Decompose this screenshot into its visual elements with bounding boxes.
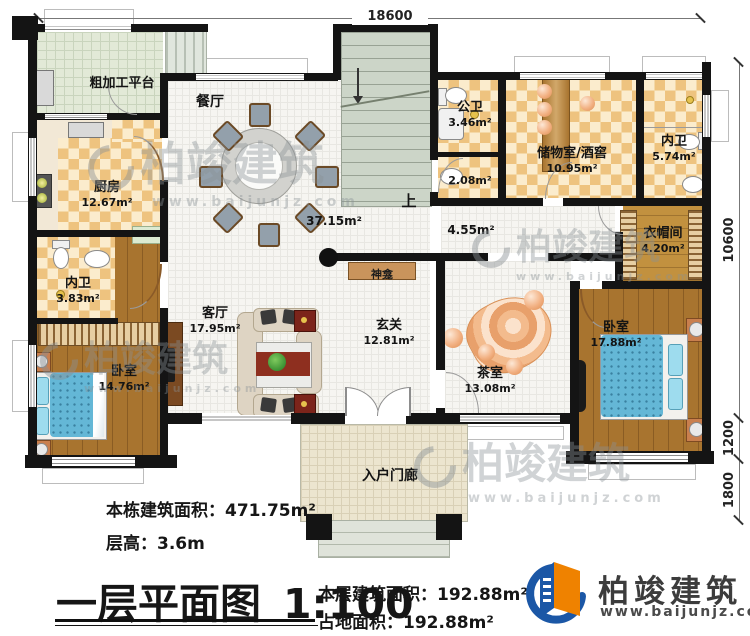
room-label-storage: 储物室/酒窖 10.95m² xyxy=(510,146,634,176)
brand-logo-icon xyxy=(524,554,590,632)
column xyxy=(319,248,338,267)
tv xyxy=(579,360,586,412)
footprint-line: 占地面积：192.88m² xyxy=(318,608,494,633)
stair-arrow xyxy=(357,68,359,98)
dimension-right-mid: 1200 xyxy=(722,416,738,460)
pillow xyxy=(36,407,49,435)
building-area-line: 本栋建筑面积：471.75m² xyxy=(106,496,316,521)
room-label-closet: 衣帽间 4.20m² xyxy=(622,226,704,256)
window xyxy=(45,114,107,119)
wall xyxy=(160,180,168,262)
dimension-right-low: 1800 xyxy=(722,468,738,512)
wall xyxy=(615,198,623,206)
room-label-bedroom-right: 卧室 17.88m² xyxy=(578,320,654,350)
room-label-foyer: 玄关 12.81m² xyxy=(352,318,426,348)
dining-chair xyxy=(258,223,280,247)
room-label-public-bath: 公卫 3.46m² xyxy=(440,100,500,130)
wine-jar xyxy=(537,84,552,99)
window-sill xyxy=(190,58,308,74)
stairs-up-label: 上 xyxy=(398,192,420,211)
room-label-living: 客厅 17.95m² xyxy=(178,306,252,336)
window xyxy=(29,345,36,407)
wall xyxy=(430,192,438,206)
wall xyxy=(548,253,622,261)
tea-stone-small xyxy=(524,290,544,310)
prep-platform-floor xyxy=(37,32,163,113)
wall xyxy=(436,253,445,370)
bath-partition xyxy=(644,127,702,128)
decor-dot xyxy=(301,317,307,323)
room-label-kitchen: 厨房 12.67m² xyxy=(58,180,156,210)
wall xyxy=(436,408,445,424)
window-sill xyxy=(44,9,134,25)
porch-steps xyxy=(318,520,450,558)
window xyxy=(196,74,304,80)
wine-jar xyxy=(580,96,595,111)
room-label-dining: 餐厅 xyxy=(178,94,242,112)
dining-table-center xyxy=(235,142,283,190)
pillow xyxy=(668,378,683,410)
stove-burner xyxy=(37,193,47,203)
window xyxy=(460,415,560,422)
room-label-bedroom-left: 卧室 14.76m² xyxy=(78,364,170,394)
title-underline xyxy=(55,619,315,622)
wall xyxy=(433,152,501,157)
wall xyxy=(636,72,644,206)
brand-website: www.baijunjz.com xyxy=(600,604,750,620)
window-sill xyxy=(458,426,564,440)
wall xyxy=(333,24,341,80)
wall xyxy=(430,80,438,160)
decor-dot xyxy=(301,401,307,407)
shrine-label: 神龛 xyxy=(371,268,393,281)
window xyxy=(596,453,688,462)
porch-column xyxy=(436,514,462,540)
wine-jar xyxy=(537,102,552,117)
title-underline-thin xyxy=(55,625,318,626)
sofa-cushion xyxy=(260,309,277,325)
floor-area-line: 本层建筑面积：192.88m² xyxy=(318,580,528,605)
window-sill xyxy=(588,464,696,480)
room-area-wash: 2.08m² xyxy=(444,174,496,188)
wall xyxy=(28,230,165,237)
window xyxy=(202,415,291,422)
dimension-line-right xyxy=(739,62,740,522)
dining-chair xyxy=(249,103,271,127)
wall xyxy=(333,24,438,32)
wardrobe xyxy=(38,322,160,346)
dining-chair xyxy=(315,166,339,188)
pillow xyxy=(36,377,49,405)
floor-drain xyxy=(686,96,694,104)
side-deck xyxy=(165,28,207,74)
room-label-bath-right: 内卫 5.74m² xyxy=(644,134,704,164)
floor-plan-canvas: 18600 10600 1200 1800 xyxy=(0,0,750,636)
window-sill xyxy=(42,468,144,484)
window xyxy=(520,73,605,79)
washbasin xyxy=(84,250,110,268)
room-label-prep-platform: 粗加工平台 xyxy=(58,76,186,92)
potted-plant xyxy=(268,353,286,371)
kitchen-sink-unit xyxy=(68,122,104,138)
sofa-cushion xyxy=(260,397,277,413)
pillow xyxy=(668,344,683,376)
window-sill xyxy=(642,56,706,73)
room-label-tea: 茶室 13.08m² xyxy=(452,366,528,396)
window xyxy=(646,73,702,79)
wall xyxy=(291,413,345,424)
stove-burner xyxy=(37,178,47,188)
dimension-right-main: 10600 xyxy=(722,210,738,270)
wall xyxy=(322,253,488,261)
dining-chair xyxy=(199,166,223,188)
window-sill xyxy=(711,90,729,142)
room-area-dining: 37.15m² xyxy=(300,214,368,229)
floor-height-line: 层高：3.6m xyxy=(106,529,205,554)
window xyxy=(703,95,710,137)
shrine-shelf: 神龛 xyxy=(348,262,416,280)
window xyxy=(52,457,135,466)
wall xyxy=(433,198,543,206)
window xyxy=(29,138,36,196)
room-area-hall: 4.55m² xyxy=(444,223,498,238)
stairs xyxy=(341,32,432,207)
toilet xyxy=(53,247,69,269)
wine-jar xyxy=(537,120,552,135)
window xyxy=(45,24,131,32)
washbasin xyxy=(682,176,704,193)
tea-stone-small xyxy=(478,344,495,361)
room-label-bath-left: 内卫 3.83m² xyxy=(36,276,120,306)
wall xyxy=(498,72,506,206)
tea-stone-small xyxy=(443,328,463,348)
window-sill xyxy=(514,56,610,73)
room-label-porch: 入户门廊 xyxy=(340,468,440,486)
dimension-top-label: 18600 xyxy=(352,9,428,25)
wall xyxy=(28,318,118,324)
wall xyxy=(570,281,579,464)
